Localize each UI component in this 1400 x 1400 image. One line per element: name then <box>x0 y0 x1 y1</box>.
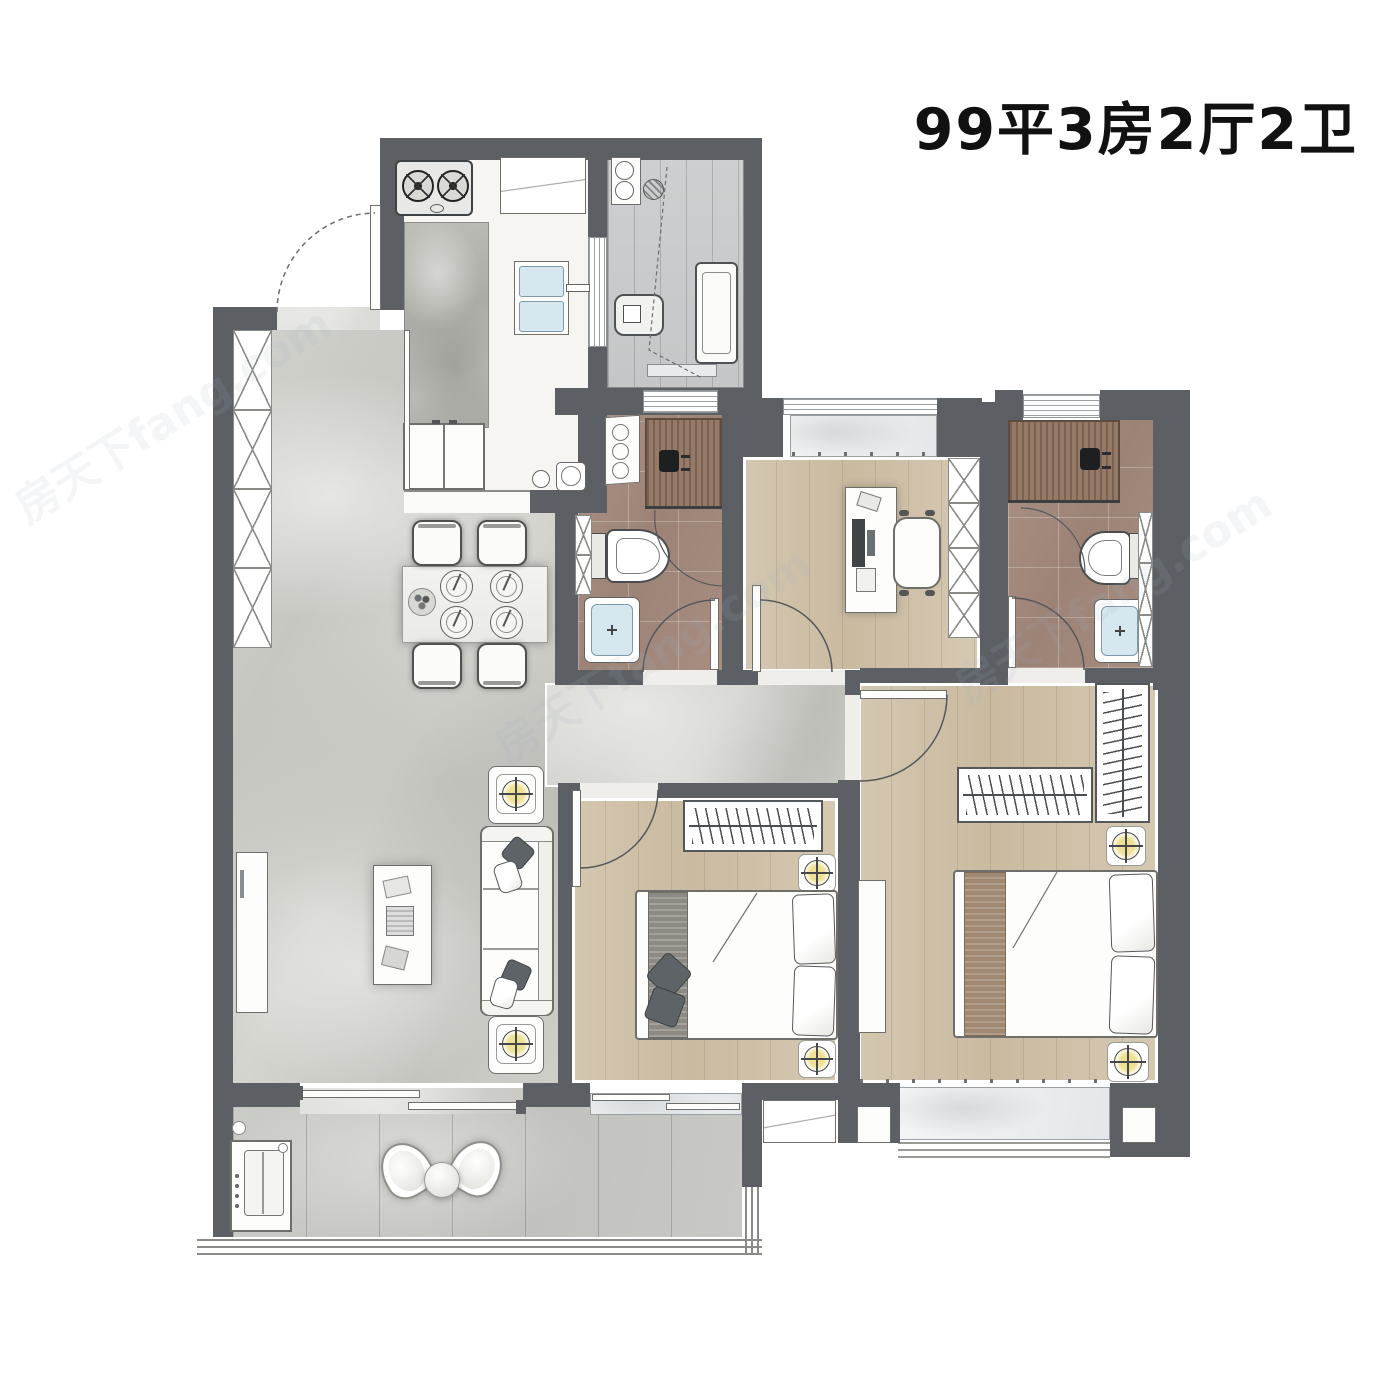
entry-cabinet-cell <box>233 568 272 648</box>
shower-head-icon <box>659 450 679 472</box>
toilet-bowl <box>1079 531 1131 585</box>
floor-drain-icon <box>232 1121 246 1135</box>
study-door-threshold <box>758 670 845 685</box>
wall-bath2-window-pier-left <box>995 390 1023 420</box>
balcony-railing <box>197 1239 762 1241</box>
shower-arm-icon <box>1102 466 1111 469</box>
wall-bath1-study-divider <box>722 402 743 685</box>
balcony-table <box>424 1162 460 1198</box>
shower-arm-icon <box>681 455 690 458</box>
sliding-door-panel <box>302 1090 420 1098</box>
wall-corner-niche-bottom <box>1110 1143 1180 1157</box>
appliance-ring-icon <box>561 466 581 486</box>
shower-head-icon <box>1080 448 1100 470</box>
bedroom2-window-panel <box>666 1103 740 1110</box>
entry-door-panel <box>370 205 381 310</box>
refrigerator-door-split <box>443 425 445 488</box>
study-sill-ticks <box>792 452 935 456</box>
master-door-panel <box>860 690 947 699</box>
balcony-railing-right <box>751 1187 753 1255</box>
bedroom2-wardrobe <box>683 800 823 852</box>
shower-arm-icon <box>681 468 690 471</box>
ac-platform <box>1122 1107 1156 1143</box>
dining-chair <box>477 520 527 566</box>
entry-cabinet-cell <box>233 410 272 489</box>
wall-master-door-stub <box>845 670 860 695</box>
balcony-railing-right <box>745 1187 747 1255</box>
wall-right-outer-lower <box>1158 683 1190 1107</box>
kitchen-sliding-door <box>404 330 410 490</box>
kitchen-sink-bowl <box>519 301 564 332</box>
master-bay-outer-line <box>898 1156 1110 1158</box>
master-shower-area <box>1008 420 1120 502</box>
dining-chair <box>412 643 462 689</box>
master-door-threshold <box>845 695 860 780</box>
utility-hob-icon <box>615 161 634 180</box>
floor-plan-canvas: 房天下fang.com 房天下fang.com 房天下fang.com 99平3… <box>0 0 1400 1400</box>
wall-study-window-pier-left <box>743 398 783 457</box>
master-bay-window-sill <box>898 1087 1110 1140</box>
chair-armrest <box>899 510 909 516</box>
sofa-backrest <box>538 836 552 1006</box>
hvac-unit-inner <box>702 272 731 354</box>
master-bath-door-panel <box>1008 596 1016 668</box>
entry-cabinet-cell <box>233 489 272 568</box>
nightstand-lamp-icon <box>798 1040 836 1078</box>
bedroom2-window-panel <box>592 1094 670 1101</box>
wall-living-bottom-left <box>213 1083 300 1107</box>
bath-shelf-cell <box>1138 563 1153 615</box>
guest-washbasin <box>584 597 640 663</box>
bed-pillow <box>1109 873 1156 952</box>
master-bath-window <box>1023 394 1100 418</box>
master-tv-cabinet <box>858 880 886 1033</box>
bookshelf-cell <box>948 548 980 593</box>
hallway-floor <box>545 683 849 787</box>
door-stop-icon <box>532 470 550 488</box>
nightstand-lamp-icon <box>1107 1042 1149 1082</box>
chair-armrest <box>925 590 935 596</box>
entry-door-arc <box>277 213 375 312</box>
master-bay-outer-line <box>898 1142 1110 1144</box>
entry-threshold <box>277 307 380 330</box>
bookshelf-cell <box>948 458 980 503</box>
bookshelf-cell <box>948 593 980 638</box>
balcony-railing <box>197 1246 762 1248</box>
guest-shower-area <box>645 418 722 508</box>
dining-chair <box>412 520 462 566</box>
tray-icon <box>386 906 414 936</box>
study-bay-window-sill <box>790 415 937 457</box>
washer-knob <box>235 1204 239 1208</box>
wall-master-top-a <box>860 668 1008 683</box>
sliding-door-panel <box>408 1102 521 1110</box>
kitchen-corner-cabinet <box>500 157 586 214</box>
bed-pillow <box>1109 955 1156 1034</box>
stove-knob <box>430 204 444 213</box>
tv-icon <box>240 870 244 898</box>
wall-master-bottom-pier-right <box>1110 1083 1190 1107</box>
table-lamp-icon <box>496 1024 536 1064</box>
place-setting-icon <box>440 570 473 603</box>
dining-chair <box>477 643 527 689</box>
wall-hall-top-a <box>555 670 643 685</box>
vanity-knob-icon <box>612 462 629 479</box>
study-door-panel <box>752 585 761 672</box>
table-lamp-icon <box>496 774 536 814</box>
bedroom2-door-panel <box>572 790 581 887</box>
utility-door-mat <box>647 364 717 377</box>
master-shower-glass <box>1008 500 1120 503</box>
washer-knob <box>235 1184 239 1188</box>
nightstand-lamp-icon <box>1106 826 1146 866</box>
wall-master-top-b <box>1085 668 1190 683</box>
kitchen-island-counter <box>404 222 489 428</box>
desk-monitor-icon <box>852 519 865 567</box>
water-heater-panel <box>623 305 641 323</box>
refrigerator-handle <box>449 420 457 424</box>
bath1-door-threshold <box>643 670 717 685</box>
flower-vase-icon <box>408 588 436 616</box>
desk-monitor-stand <box>867 530 875 556</box>
chair-armrest <box>899 590 909 596</box>
toilet-bowl <box>606 529 670 583</box>
wall-bedroom2-left <box>558 798 572 1107</box>
ac-platform <box>763 1100 836 1143</box>
bed-pillow <box>792 965 836 1036</box>
bath-shelf-cell <box>1138 512 1153 563</box>
wall-bedrooms-divider <box>838 780 860 1083</box>
chair-armrest <box>925 510 935 516</box>
master-wardrobe-a <box>957 767 1093 823</box>
master-wardrobe-b <box>1095 683 1150 823</box>
vanity-knob-icon <box>612 443 629 460</box>
kitchen-sink-bowl <box>519 266 564 297</box>
wall-entry-stub <box>213 307 277 330</box>
balcony-railing <box>197 1253 762 1255</box>
wall-utility-right <box>744 138 762 402</box>
wall-study-window-pier-right <box>937 398 982 457</box>
washer-dial-icon <box>278 1143 288 1153</box>
kitchen-low-partition <box>404 490 530 513</box>
kitchen-faucet-icon <box>566 284 590 292</box>
wall-study-bath2-divider <box>980 402 1008 685</box>
washer-knob <box>235 1174 239 1178</box>
wall-living-bottom-pier <box>523 1083 558 1107</box>
stove-burner-icon <box>437 170 469 202</box>
master-bay-outer-line <box>898 1149 1110 1151</box>
bed-runner <box>964 872 1006 1036</box>
wall-bedroom2-bottom <box>558 1083 590 1107</box>
place-setting-icon <box>490 570 523 603</box>
wall-hall-top-b <box>717 670 758 685</box>
washer-knob <box>235 1194 239 1198</box>
master-bath-threshold <box>1008 668 1085 683</box>
balcony-railing-right <box>757 1187 759 1255</box>
washer-door <box>244 1150 284 1216</box>
wall-right-outer-upper <box>1153 390 1190 690</box>
sofa-cushion-split <box>483 948 538 950</box>
wall-master-bottom-pier-left <box>838 1083 898 1107</box>
wall-kitchen-utility-upper <box>588 160 607 237</box>
place-setting-icon <box>440 606 473 639</box>
utility-bath-window <box>643 390 718 413</box>
desk-item <box>856 568 876 592</box>
bath-shelf-cell <box>575 555 592 595</box>
shower-arm-icon <box>1102 452 1111 455</box>
bath-shelf-cell <box>1138 615 1153 667</box>
kitchen-utility-window <box>588 237 607 347</box>
office-chair <box>893 517 941 589</box>
guest-bath-door-panel <box>710 598 719 670</box>
bookshelf-cell <box>948 503 980 548</box>
study-window <box>783 398 943 415</box>
nightstand-lamp-icon <box>798 854 836 892</box>
utility-hob-icon <box>615 181 634 200</box>
bed-pillow <box>792 893 836 964</box>
floor-drain-icon <box>643 179 664 200</box>
guest-shower-glass <box>645 506 722 509</box>
bedroom2-door-threshold <box>580 783 658 798</box>
washer-door-split <box>262 1152 264 1214</box>
stove-burner-icon <box>402 170 434 202</box>
plan-title: 99平3房2厅2卫 <box>914 84 1358 166</box>
vanity-knob-icon <box>612 424 629 441</box>
wall-bath2-window-pier-right <box>1100 390 1155 420</box>
refrigerator-handle <box>432 420 440 424</box>
entry-cabinet-cell <box>233 330 272 410</box>
bath-shelf-cell <box>575 515 592 555</box>
place-setting-icon <box>490 606 523 639</box>
wall-bedroom2-top-b <box>658 783 845 798</box>
